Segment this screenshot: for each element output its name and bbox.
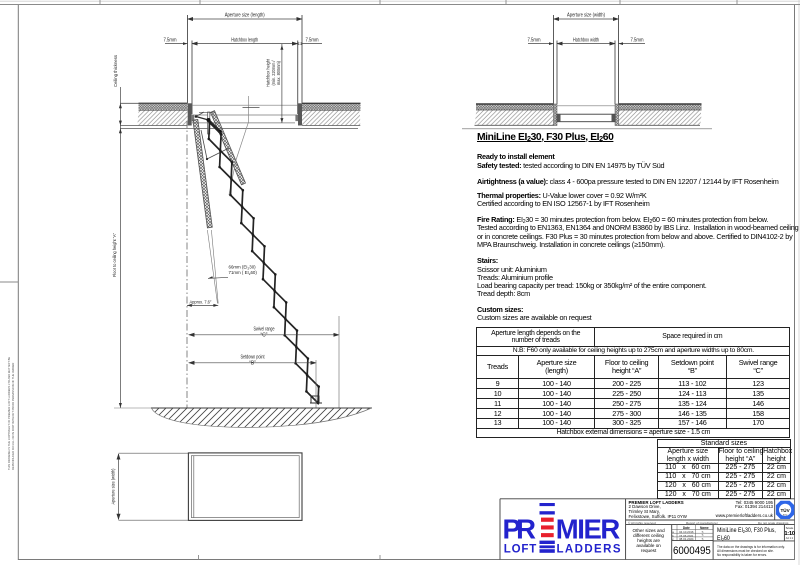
svg-text:LOFT: LOFT bbox=[504, 544, 538, 556]
svg-text:7.5mm: 7.5mm bbox=[306, 37, 319, 43]
svg-text:Ceiling thickness: Ceiling thickness bbox=[113, 55, 119, 87]
svg-text:Approx. 7.6°: Approx. 7.6° bbox=[190, 300, 212, 305]
svg-text:Hatchbox width: Hatchbox width bbox=[573, 37, 599, 43]
svg-text:PR: PR bbox=[503, 513, 537, 544]
svg-text:“B”: “B” bbox=[249, 361, 256, 367]
svg-text:Aperture size (width): Aperture size (width) bbox=[567, 13, 605, 19]
svg-text:“C”: “C” bbox=[261, 333, 268, 339]
svg-text:MIER: MIER bbox=[556, 513, 621, 544]
svg-text:LADDERS: LADDERS bbox=[557, 544, 622, 556]
svg-text:7.5mm: 7.5mm bbox=[528, 37, 541, 43]
svg-text:max. 800mm): max. 800mm) bbox=[276, 61, 281, 85]
svg-text:Aperture size (width): Aperture size (width) bbox=[111, 468, 117, 504]
svg-text:Floor to ceiling height “A”: Floor to ceiling height “A” bbox=[112, 233, 118, 277]
svg-text:71mm ( EI260): 71mm ( EI260) bbox=[229, 270, 258, 276]
svg-text:Hatchbox length: Hatchbox length bbox=[231, 37, 258, 43]
svg-text:7.5mm: 7.5mm bbox=[164, 37, 177, 43]
svg-text:7.5mm: 7.5mm bbox=[631, 37, 644, 43]
svg-text:Aperture size (length): Aperture size (length) bbox=[225, 13, 265, 19]
svg-text:Setdown point: Setdown point bbox=[241, 354, 265, 360]
svg-text:Swivel range: Swivel range bbox=[254, 327, 275, 333]
svg-text:TÜV: TÜV bbox=[781, 507, 791, 513]
svg-text:SÜD: SÜD bbox=[783, 513, 788, 516]
